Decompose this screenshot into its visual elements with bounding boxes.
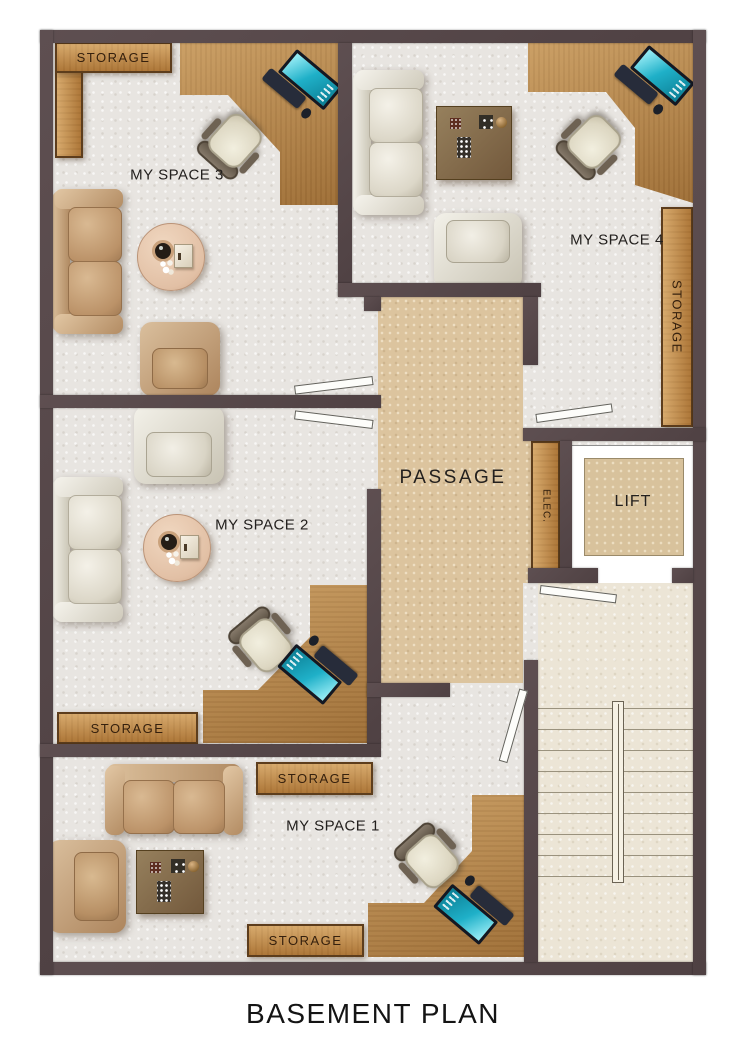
outer-wall-top bbox=[40, 30, 706, 43]
storage-cabinet-space1-upper: STORAGE bbox=[256, 762, 373, 795]
side-table-space1 bbox=[136, 850, 204, 914]
wall-space2-bottom bbox=[40, 744, 381, 757]
room-label-space3: MY SPACE 3 bbox=[130, 167, 224, 184]
wall-space3-right bbox=[338, 43, 352, 297]
armchair-space3 bbox=[140, 322, 220, 396]
wall-passage-bottom bbox=[367, 683, 450, 697]
mouse bbox=[299, 106, 313, 120]
elec-label: ELEC. bbox=[541, 489, 552, 523]
sofa-space2 bbox=[52, 477, 125, 622]
storage-label: STORAGE bbox=[59, 714, 196, 742]
wall-stairs-left bbox=[524, 660, 538, 962]
wall-lift-bottom-left bbox=[528, 568, 598, 583]
passage-label: PASSAGE bbox=[400, 467, 507, 489]
room-label-space2: MY SPACE 2 bbox=[215, 517, 309, 534]
mouse bbox=[463, 874, 477, 888]
storage-label: STORAGE bbox=[258, 764, 371, 793]
wall-space3-space2-divider bbox=[40, 395, 381, 408]
stair-railing bbox=[612, 701, 624, 883]
mouse bbox=[307, 634, 321, 648]
wall-passage-top bbox=[338, 283, 541, 297]
coffee-table-space3 bbox=[137, 223, 205, 291]
wall-lift-bottom-right bbox=[672, 568, 693, 583]
side-table-space4 bbox=[436, 106, 512, 180]
basement-floor-plan: STORAGE STORAGE bbox=[0, 0, 745, 1048]
storage-label: STORAGE bbox=[57, 44, 170, 71]
plan-title: BASEMENT PLAN bbox=[246, 998, 500, 1030]
sofa-space1 bbox=[105, 764, 243, 837]
storage-cabinet-space2: STORAGE bbox=[57, 712, 198, 744]
coffee-table-space2 bbox=[143, 514, 211, 582]
passage-floor bbox=[378, 297, 523, 683]
outer-wall-right bbox=[693, 30, 706, 975]
lift-lobby-threshold bbox=[597, 568, 673, 583]
storage-label: STORAGE bbox=[663, 209, 691, 425]
room-label-space4: MY SPACE 4 bbox=[570, 232, 664, 249]
wall-space2-right bbox=[367, 489, 381, 744]
armchair-space4 bbox=[434, 213, 522, 289]
wall-passage-right-stub bbox=[523, 297, 538, 365]
wall-lift-left bbox=[560, 441, 572, 583]
wall-passage-top-pilaster bbox=[364, 297, 381, 311]
sofa-space3 bbox=[52, 189, 125, 334]
storage-label: STORAGE bbox=[249, 926, 362, 955]
outer-wall-bottom bbox=[40, 962, 706, 975]
outer-wall-left bbox=[40, 30, 53, 975]
room-label-space1: MY SPACE 1 bbox=[286, 818, 380, 835]
storage-cabinet-space1-lower: STORAGE bbox=[247, 924, 364, 957]
wall-lift-top bbox=[523, 428, 706, 441]
stairs bbox=[538, 583, 693, 962]
mouse bbox=[651, 102, 665, 116]
lift-label: LIFT bbox=[615, 493, 652, 511]
storage-cabinet-right: STORAGE bbox=[661, 207, 693, 427]
armchair-space1 bbox=[48, 840, 126, 933]
armchair-space2 bbox=[134, 406, 224, 484]
storage-cabinet-top-left: STORAGE bbox=[55, 42, 172, 73]
sofa-space4 bbox=[353, 70, 426, 215]
